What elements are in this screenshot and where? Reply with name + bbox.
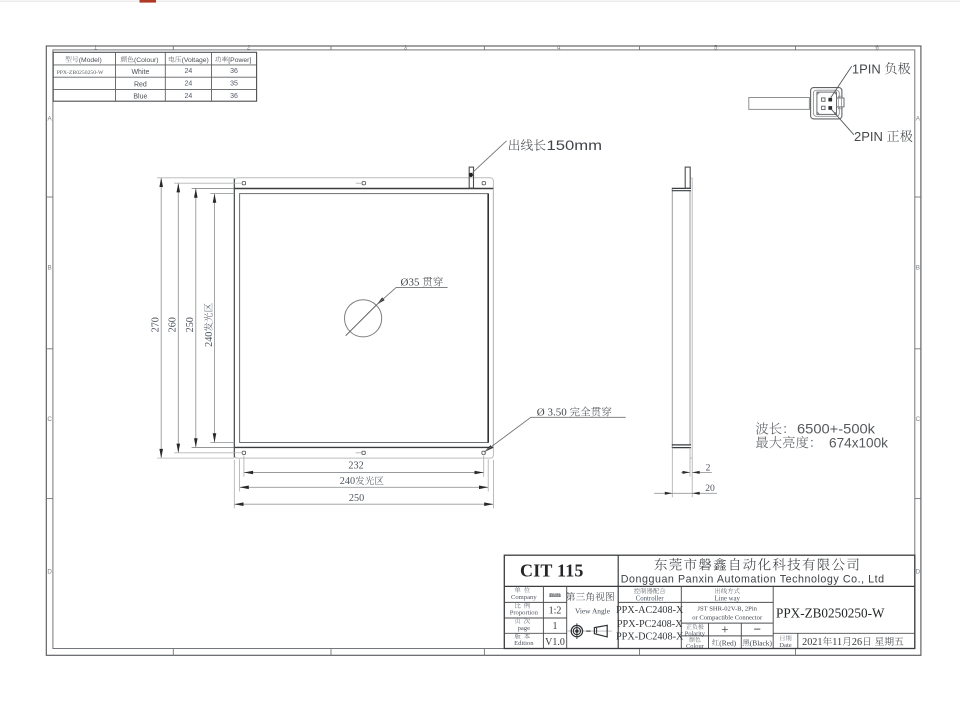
svg-text:36: 36	[230, 68, 238, 75]
svg-text:Colour: Colour	[686, 643, 705, 650]
svg-text:A: A	[916, 116, 921, 123]
svg-text:Blue: Blue	[133, 94, 147, 101]
svg-text:(Black): (Black)	[750, 638, 773, 647]
svg-text:JST SHR-02V-B, 2Pin: JST SHR-02V-B, 2Pin	[697, 606, 757, 613]
svg-text:Proportion: Proportion	[510, 610, 539, 617]
svg-text:–: –	[753, 621, 761, 635]
svg-text:C: C	[47, 416, 52, 423]
svg-text:White: White	[131, 69, 149, 76]
svg-text:Dongguan Panxin Automation Tec: Dongguan Panxin Automation Technology Co…	[621, 574, 885, 586]
svg-text:6500+-500k: 6500+-500k	[797, 422, 875, 437]
svg-text:6: 6	[875, 44, 879, 51]
svg-text:240: 240	[340, 476, 355, 487]
svg-text:CIT 115: CIT 115	[520, 561, 584, 581]
svg-text:View Angle: View Angle	[575, 607, 611, 616]
svg-text:B: B	[916, 265, 920, 272]
svg-text:2: 2	[706, 462, 711, 473]
svg-text:35: 35	[230, 81, 238, 88]
svg-text:36: 36	[230, 93, 238, 100]
svg-text:1PIN: 1PIN	[852, 61, 881, 76]
svg-text:Controller: Controller	[636, 596, 665, 603]
svg-text:1: 1	[553, 621, 558, 632]
svg-text:1: 1	[94, 44, 98, 51]
svg-text:26: 26	[852, 637, 862, 648]
svg-text:page: page	[518, 625, 531, 632]
svg-text:D: D	[47, 569, 52, 576]
svg-text:A: A	[48, 116, 53, 123]
svg-text:D: D	[916, 569, 921, 576]
svg-text:270: 270	[151, 317, 162, 332]
svg-text:2021: 2021	[802, 637, 822, 648]
svg-text:PPX-ZB0250250-W: PPX-ZB0250250-W	[57, 70, 104, 76]
svg-text:Red: Red	[134, 81, 147, 88]
svg-text:Ø35: Ø35	[401, 277, 420, 289]
svg-text:(Red): (Red)	[719, 638, 736, 647]
svg-text:Date: Date	[779, 642, 792, 649]
svg-text:or Compactible Connector: or Compactible Connector	[692, 615, 763, 622]
svg-text:674x100k: 674x100k	[829, 435, 888, 450]
svg-text:Ø 3.50: Ø 3.50	[537, 407, 567, 419]
svg-text:260: 260	[168, 317, 179, 332]
svg-text:+: +	[721, 622, 728, 637]
svg-text:Polarity: Polarity	[685, 630, 706, 637]
svg-text:PPX-PC2408-X: PPX-PC2408-X	[617, 619, 683, 630]
svg-text:V1.0: V1.0	[545, 637, 565, 648]
svg-text:[Power]: [Power]	[228, 57, 251, 64]
svg-text:24: 24	[185, 68, 193, 75]
svg-text:1:2: 1:2	[549, 606, 562, 617]
svg-text:2PIN: 2PIN	[854, 129, 883, 144]
svg-text:Edition: Edition	[514, 640, 534, 647]
svg-text:5: 5	[714, 44, 718, 51]
svg-text:Line way: Line way	[714, 596, 740, 603]
svg-text:(Voltage): (Voltage)	[182, 57, 209, 64]
svg-text:24: 24	[185, 81, 193, 88]
svg-text:150mm: 150mm	[547, 138, 603, 153]
svg-text:B: B	[48, 265, 52, 272]
svg-text:(Colour): (Colour)	[134, 57, 159, 64]
svg-text:2: 2	[247, 44, 251, 51]
svg-text:3: 3	[404, 44, 408, 51]
svg-text:250: 250	[185, 317, 196, 332]
svg-text:232: 232	[348, 460, 363, 471]
svg-text:11: 11	[832, 637, 842, 648]
svg-text:250: 250	[349, 493, 364, 504]
svg-text:PPX-ZB0250250-W: PPX-ZB0250250-W	[776, 606, 885, 621]
svg-text:PPX-DC2408-X: PPX-DC2408-X	[616, 632, 684, 643]
svg-text:Company: Company	[511, 594, 537, 601]
svg-text:240: 240	[204, 332, 215, 347]
svg-text:24: 24	[185, 93, 193, 100]
svg-text:PPX-AC2408-X: PPX-AC2408-X	[616, 605, 684, 616]
svg-text:(Model): (Model)	[79, 57, 102, 64]
svg-text:4: 4	[557, 44, 561, 51]
svg-text:20: 20	[705, 483, 715, 494]
svg-text:C: C	[916, 416, 921, 423]
svg-text:mm: mm	[549, 591, 561, 599]
